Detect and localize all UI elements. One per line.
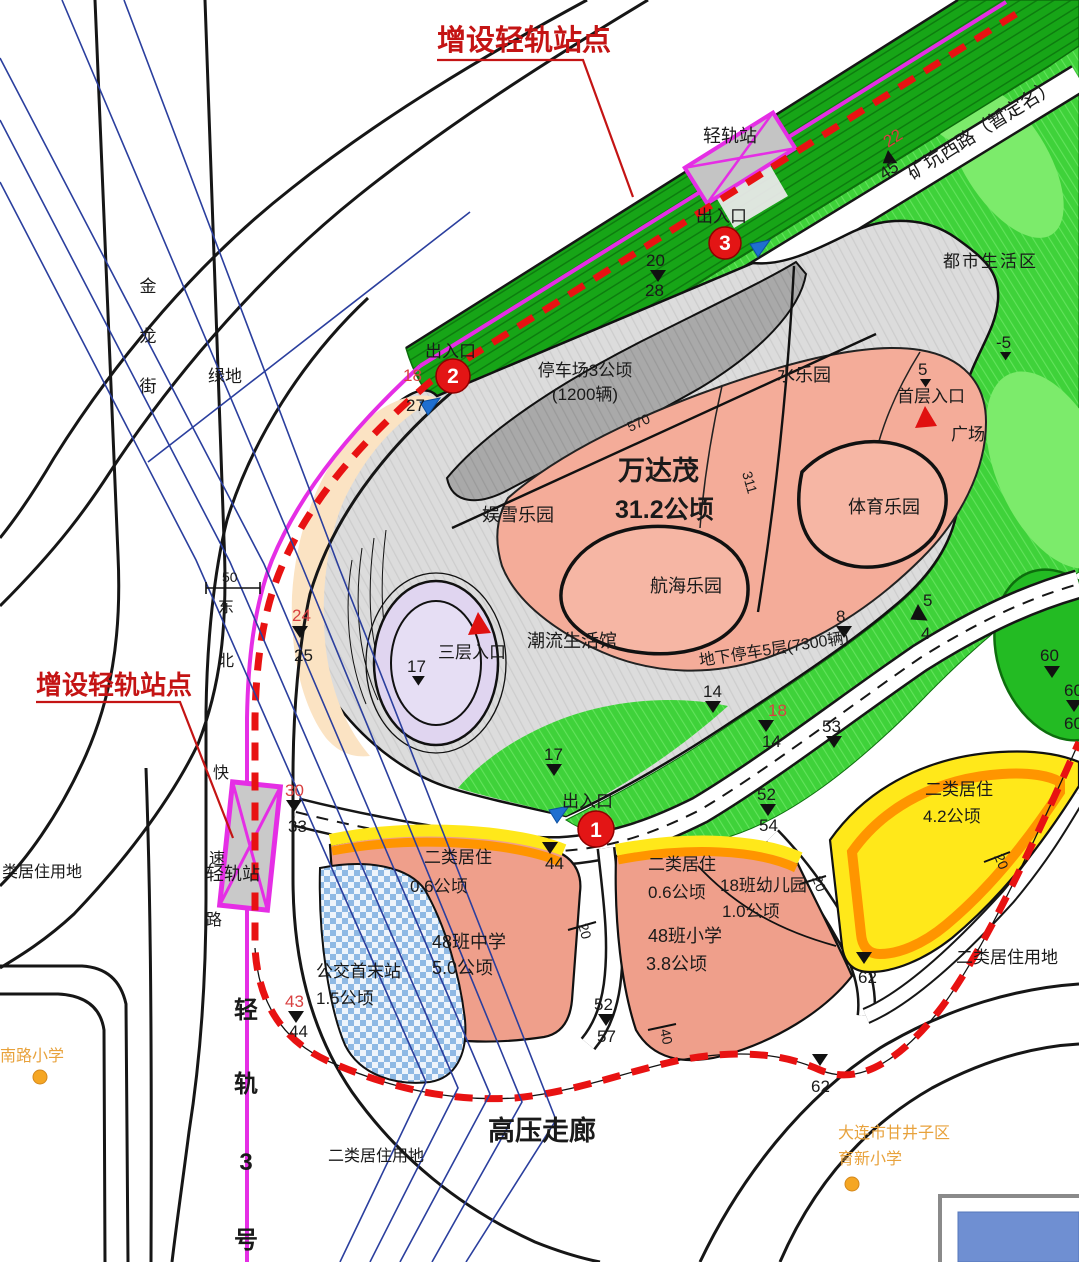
residential-y-label-1: 二类居住 [925, 780, 993, 799]
dim-52b: 52 [594, 995, 613, 1014]
kindergarten-label-2: 1.0公顷 [722, 902, 780, 921]
svg-text:3: 3 [239, 1149, 252, 1176]
residential-w-label-1: 二类居住 [424, 848, 492, 867]
dim-52a: 52 [757, 785, 776, 804]
entrance-circle-2: 2 [436, 359, 470, 393]
area-wanda-size: 31.2公顷 [615, 496, 714, 524]
nanlu-school-dot [33, 1070, 47, 1084]
dim-43: 43 [285, 992, 304, 1011]
primary-school-label-1: 48班小学 [648, 926, 722, 946]
dim-30: 30 [285, 781, 304, 800]
dim-18b: 18 [768, 701, 787, 720]
entrance-number-1: 1 [590, 819, 602, 842]
dim-60b: 60 [1064, 681, 1079, 700]
bus-depot-label-1: 公交首末站 [316, 962, 401, 981]
area-tiyu: 体育乐园 [848, 497, 920, 517]
road-name-jinlong: 金 龙 街 [140, 277, 157, 396]
rail-station-left [220, 782, 281, 910]
dim-25: 25 [294, 646, 313, 665]
residential-y-label-2: 4.2公顷 [923, 807, 981, 826]
svg-text:金: 金 [140, 277, 157, 296]
dim-54: 54 [759, 816, 778, 835]
svg-text:轻: 轻 [234, 996, 258, 1024]
entrance-number-2: 2 [447, 365, 459, 388]
svg-text:路: 路 [206, 911, 222, 929]
dim-44a: 44 [289, 1022, 308, 1041]
dim-14b: 14 [762, 732, 781, 751]
dim-14a: 14 [703, 682, 722, 701]
area-yuxue: 娱雪乐园 [482, 505, 554, 525]
dim-44b: 44 [545, 854, 564, 873]
blue-building [958, 1212, 1079, 1262]
svg-text:东: 东 [218, 598, 234, 616]
plaza-label: 广场 [951, 425, 985, 444]
dim-27: 27 [406, 396, 425, 415]
dim-60c: 60 [1064, 714, 1079, 733]
yuxin-school-dot [845, 1177, 859, 1191]
area-shui: 水乐园 [777, 365, 831, 385]
area-chaoliu: 潮流生活馆 [527, 631, 617, 651]
spiral-ramp-inner [391, 601, 481, 725]
svg-text:速: 速 [209, 850, 225, 868]
entrance-number-3: 3 [719, 232, 731, 255]
exit-label-1: 出入口 [562, 792, 613, 811]
first-floor-entry-label: 首层入口 [897, 387, 965, 406]
parking-label-2: (1200辆) [552, 385, 618, 404]
svg-text:号: 号 [234, 1227, 258, 1254]
residential-m-label-2: 0.6公顷 [648, 883, 706, 902]
hv-corridor-label: 高压走廊 [488, 1115, 596, 1146]
exit-label-2: 出入口 [425, 342, 476, 361]
dim-5b: 5 [923, 591, 932, 610]
exit-label-3: 出入口 [696, 207, 747, 226]
parking-label-1: 停车场3公顷 [538, 361, 632, 380]
dim-33: 33 [288, 817, 307, 836]
third-floor-entry-label: 三层入口 [438, 643, 506, 662]
yuxin-school-label-1: 大连市甘井子区 [838, 1124, 950, 1142]
dim-28: 28 [645, 281, 664, 300]
primary-school-label-2: 3.8公顷 [646, 954, 707, 974]
entrance-circle-3: 3 [709, 227, 741, 259]
annotation-add-station-left: 增设轻轨站点 [36, 670, 192, 700]
dim-62a: 62 [858, 968, 877, 987]
residential-w-label-2: 0.6公顷 [410, 877, 468, 896]
dim-50: 50 [222, 569, 238, 585]
dim-60a: 60 [1040, 646, 1059, 665]
area-dushi: 都市生活区 [943, 252, 1038, 271]
dim-53: 53 [822, 717, 841, 736]
residential-bottom-label: 二类居住用地 [328, 1147, 424, 1165]
annotation-add-station-top: 增设轻轨站点 [437, 23, 611, 57]
residential-m-label-1: 二类居住 [648, 855, 716, 874]
dim-4: 4 [921, 624, 930, 643]
dim-18a: 18 [403, 366, 422, 385]
svg-text:快: 快 [213, 764, 229, 782]
greenland-label: 绿地 [208, 367, 242, 386]
svg-text:街: 街 [140, 377, 157, 396]
bus-depot-label-2: 1.5公顷 [316, 989, 374, 1008]
svg-text:龙: 龙 [140, 327, 157, 346]
dim-17a: 17 [407, 657, 426, 676]
station-label-top: 轻轨站 [703, 126, 757, 146]
middle-school-label-2: 5.0公顷 [432, 958, 493, 978]
plan-canvas: 3 2 1 增设轻轨站点 增设轻轨站点 高压走廊 轻 轨 3 号 轻轨站 轻轨站… [0, 0, 1079, 1262]
yuxin-school-label-2: 育新小学 [838, 1150, 902, 1168]
entrance-circle-1: 1 [578, 811, 614, 847]
dim-62b: 62 [811, 1077, 830, 1096]
residential-cut-label: 类居住用地 [2, 863, 82, 881]
site-plan-map: 3 2 1 增设轻轨站点 增设轻轨站点 高压走廊 轻 轨 3 号 轻轨站 轻轨站… [0, 0, 1079, 1262]
nanlu-school-label: 南路小学 [0, 1047, 64, 1065]
area-hanghai: 航海乐园 [650, 576, 722, 596]
dim-5a: 5 [918, 360, 927, 379]
area-wanda: 万达茂 [618, 456, 699, 486]
svg-text:北: 北 [218, 652, 234, 670]
middle-school-label-1: 48班中学 [432, 932, 506, 952]
residential-right-label: 二类居住用地 [956, 948, 1058, 967]
dim-17b: 17 [544, 745, 563, 764]
dim-24: 24 [292, 606, 311, 625]
dim-8: 8 [836, 607, 845, 626]
svg-text:轨: 轨 [234, 1070, 258, 1098]
dim-20a: 20 [646, 251, 665, 270]
kindergarten-label-1: 18班幼儿园 [720, 876, 807, 895]
dim-57: 57 [597, 1027, 616, 1046]
dim-5neg: -5 [996, 333, 1011, 352]
